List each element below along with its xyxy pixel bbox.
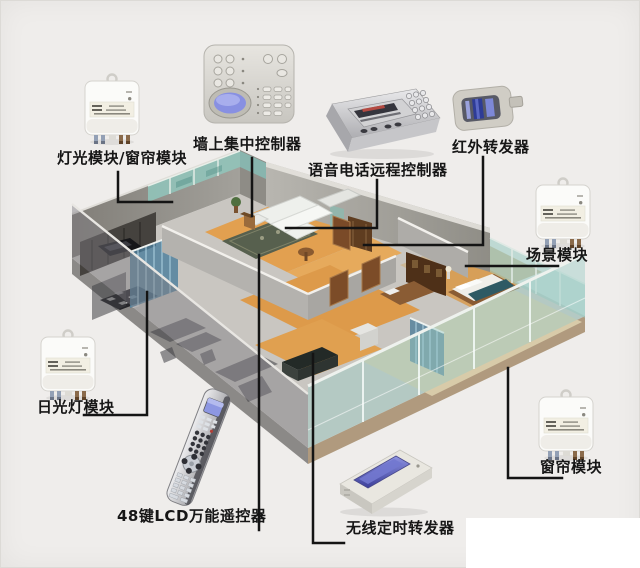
wall-module-image [38,328,98,402]
label-scene-module: 场景模块 [526,247,588,264]
label-wireless-timer-repeater: 无线定时转发器 [346,520,455,537]
device-curtain-module [536,388,596,462]
ir-repeater-image [446,78,526,138]
device-voice-phone-remote-controller [312,84,446,164]
device-ir-repeater [446,78,526,138]
wall-module-image [536,388,596,462]
label-wall-central-controller: 墙上集中控制器 [193,136,302,153]
device-wireless-timer-repeater [330,442,440,518]
label-ir-repeater: 红外转发器 [452,139,530,156]
background-corner-patch [466,518,640,568]
label-light-curtain-module: 灯光模块/窗帘模块 [57,150,187,167]
wall-module-image [533,176,593,250]
device-lcd-remote-48key [152,383,244,511]
wall-controller-image [202,43,296,127]
voice-phone-console-image [312,84,446,164]
wall-module-image [82,72,142,146]
device-wall-central-controller [202,43,296,127]
label-voice-phone-remote-controller: 语音电话远程控制器 [308,162,448,179]
device-light-curtain-module [82,72,142,146]
label-curtain-module: 窗帘模块 [540,459,602,476]
label-fluorescent-light-module: 日光灯模块 [37,399,115,416]
remote-control-image [152,383,244,511]
device-scene-module [533,176,593,250]
device-fluorescent-light-module [38,328,98,402]
smart-home-diagram: 灯光模块/窗帘模块 墙上集中控制器 语音电话远程控制器 红外转发器 场景模块 日… [0,0,640,568]
label-lcd-remote-48key: 48键LCD万能遥控器 [117,508,266,525]
wireless-timer-image [330,442,440,518]
